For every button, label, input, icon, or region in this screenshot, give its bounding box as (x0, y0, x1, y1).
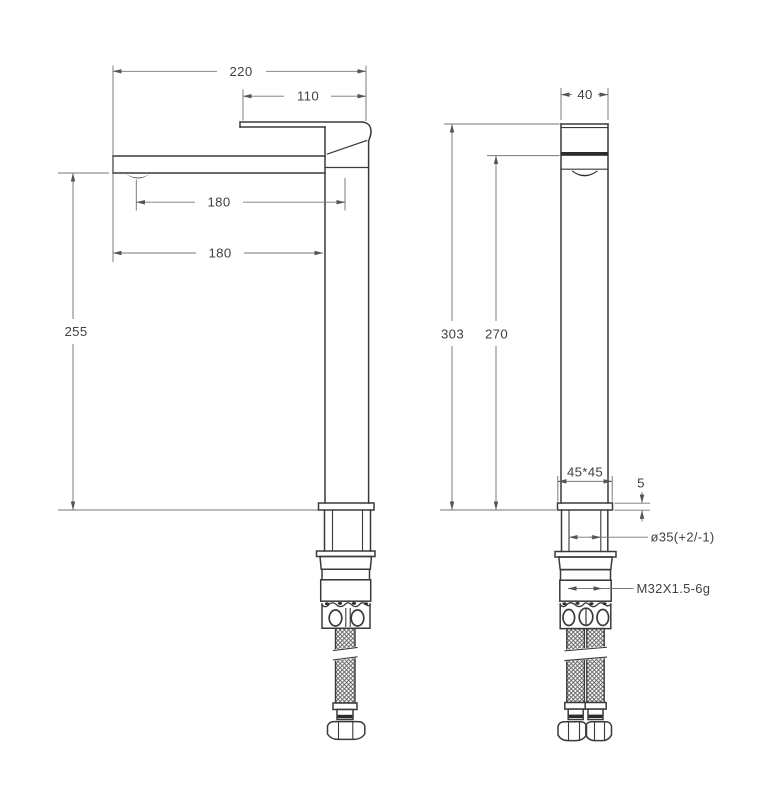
dim-label-45x45: 45*45 (567, 465, 603, 480)
dim-label-40: 40 (577, 87, 592, 102)
gasket-flange-front (555, 552, 616, 558)
dim-label-5: 5 (637, 475, 645, 490)
supply-hoses-front (558, 629, 612, 741)
technical-drawing-page: 220 110 180 180 255 (0, 0, 758, 800)
extension-lines (58, 66, 366, 511)
aerator (126, 174, 151, 179)
mounting-nut-front (560, 602, 611, 629)
hose-nut (328, 722, 365, 740)
hose-nut (558, 722, 587, 741)
front-view (555, 124, 616, 741)
spout (113, 156, 325, 178)
body-column-front (561, 124, 608, 503)
base-plate-front (558, 503, 613, 510)
dim-label-303: 303 (441, 326, 464, 341)
dim-label-220: 220 (230, 64, 253, 79)
dim-label-hole-diameter: ø35(+2/-1) (651, 530, 715, 545)
side-view-dimensions: 220 110 180 180 255 (58, 64, 366, 510)
faucet-dimension-drawing: 220 110 180 180 255 (0, 0, 758, 800)
dim-label-180-upper: 180 (208, 195, 231, 210)
body-column (325, 127, 369, 503)
dim-label-180-lower: 180 (209, 246, 232, 261)
dim-label-thread-spec: M32X1.5-6g (637, 581, 711, 596)
dim-label-110: 110 (297, 89, 319, 104)
dim-label-270: 270 (485, 326, 508, 341)
hose-nut (586, 722, 612, 741)
supply-hose (328, 628, 365, 739)
hose-ferrule (565, 703, 586, 710)
handle-joint-band (561, 152, 608, 156)
hose-ferrule (333, 703, 357, 710)
base-plate (319, 503, 375, 510)
front-view-dimensions: 40 303 270 45*45 5 ø35(+2/-1) M32X1.5-6g (440, 87, 715, 596)
mounting-nut (322, 602, 370, 628)
dim-label-255: 255 (65, 324, 88, 339)
gasket-flange (317, 551, 376, 557)
hose-ferrule (585, 703, 606, 710)
side-view (113, 122, 375, 739)
extension-lines (440, 88, 650, 510)
handle-lever (240, 122, 371, 154)
mounting-shank (317, 510, 376, 601)
mounting-shank-front (555, 510, 616, 601)
